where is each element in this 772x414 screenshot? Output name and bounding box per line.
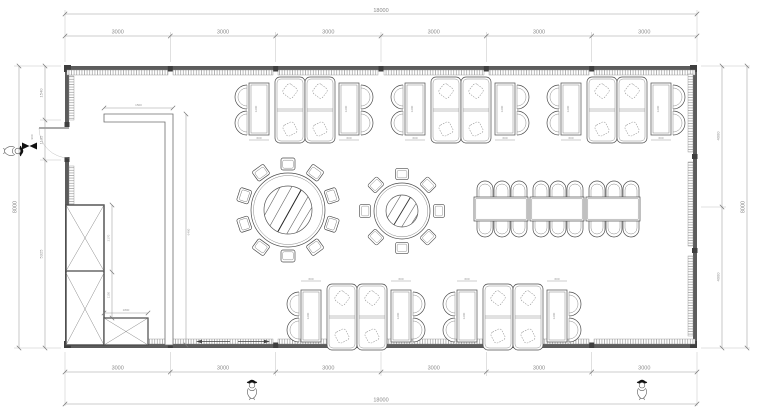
banquet-table-group: [474, 181, 640, 237]
svg-text:1540: 1540: [39, 88, 44, 98]
dim-bottom-overall: 18000: [373, 398, 388, 404]
svg-text:600: 600: [568, 136, 573, 140]
svg-text:3000: 3000: [428, 366, 440, 372]
person-figure: [637, 380, 647, 400]
svg-text:1200: 1200: [566, 105, 570, 112]
svg-text:1200: 1200: [500, 105, 504, 112]
svg-text:1200: 1200: [552, 312, 556, 319]
tall-cabinet: [66, 205, 104, 345]
svg-text:1200: 1200: [396, 312, 400, 319]
dim-left-overall: 8000: [13, 201, 19, 213]
svg-text:5325: 5325: [39, 249, 44, 259]
svg-text:3000: 3000: [112, 366, 124, 372]
svg-text:3000: 3000: [428, 30, 440, 36]
svg-text:1200: 1200: [254, 105, 258, 112]
svg-text:3000: 3000: [217, 366, 229, 372]
svg-text:600: 600: [398, 277, 403, 281]
service-counter-partition: [104, 114, 173, 345]
dimension-bottom: 3000 3000 3000 3000 3000 3000 18000: [63, 352, 699, 406]
svg-text:900: 900: [30, 134, 34, 139]
svg-text:1500: 1500: [135, 103, 142, 107]
svg-text:1200: 1200: [306, 312, 310, 319]
dimension-top: 18000 3000 3000 3000 3000 3000 3000: [63, 8, 699, 62]
svg-text:600: 600: [308, 277, 313, 281]
dim-top-overall: 18000: [373, 8, 388, 14]
dimension-cabinet: 2170 1150 1800: [102, 203, 150, 320]
svg-text:1800: 1800: [123, 308, 130, 312]
svg-text:1200: 1200: [410, 105, 414, 112]
svg-text:6460: 6460: [187, 228, 191, 235]
svg-text:3000: 3000: [533, 366, 545, 372]
svg-text:600: 600: [464, 277, 469, 281]
svg-text:1200: 1200: [344, 105, 348, 112]
dimension-partition: 1500 6460: [102, 103, 191, 347]
svg-text:3000: 3000: [533, 30, 545, 36]
svg-text:600: 600: [658, 136, 663, 140]
svg-text:3000: 3000: [322, 30, 334, 36]
svg-text:3000: 3000: [638, 30, 650, 36]
entry-door: [22, 128, 69, 158]
floor-plan-canvas: 600600 600600 600600 600600 600600 1200 …: [0, 0, 772, 414]
dim-right-overall: 8000: [741, 201, 747, 213]
person-figure: [247, 380, 257, 400]
svg-text:4000: 4000: [716, 131, 721, 141]
door-direction-marker: [22, 143, 37, 150]
svg-text:1135: 1135: [39, 135, 44, 144]
svg-text:600: 600: [554, 277, 559, 281]
svg-text:600: 600: [256, 136, 261, 140]
svg-text:1200: 1200: [462, 312, 466, 319]
svg-text:4000: 4000: [716, 272, 721, 282]
floor-plan-drawing: 600600 600600 600600 600600 600600 1200 …: [0, 0, 772, 414]
svg-text:3000: 3000: [217, 30, 229, 36]
svg-text:1150: 1150: [107, 291, 111, 298]
round-table-small: [359, 168, 444, 253]
round-table-large: [236, 158, 339, 262]
dimension-left: 1540 1135 5325 900 8000: [13, 64, 62, 350]
svg-text:3000: 3000: [112, 30, 124, 36]
svg-text:600: 600: [346, 136, 351, 140]
svg-text:2170: 2170: [107, 234, 111, 241]
svg-text:600: 600: [412, 136, 417, 140]
person-figure: [3, 146, 23, 156]
svg-text:3000: 3000: [638, 366, 650, 372]
low-cabinet: [104, 318, 148, 345]
dimension-right: 4000 4000 8000: [701, 64, 750, 350]
svg-text:1200: 1200: [656, 105, 660, 112]
svg-text:600: 600: [502, 136, 507, 140]
svg-text:3000: 3000: [322, 366, 334, 372]
